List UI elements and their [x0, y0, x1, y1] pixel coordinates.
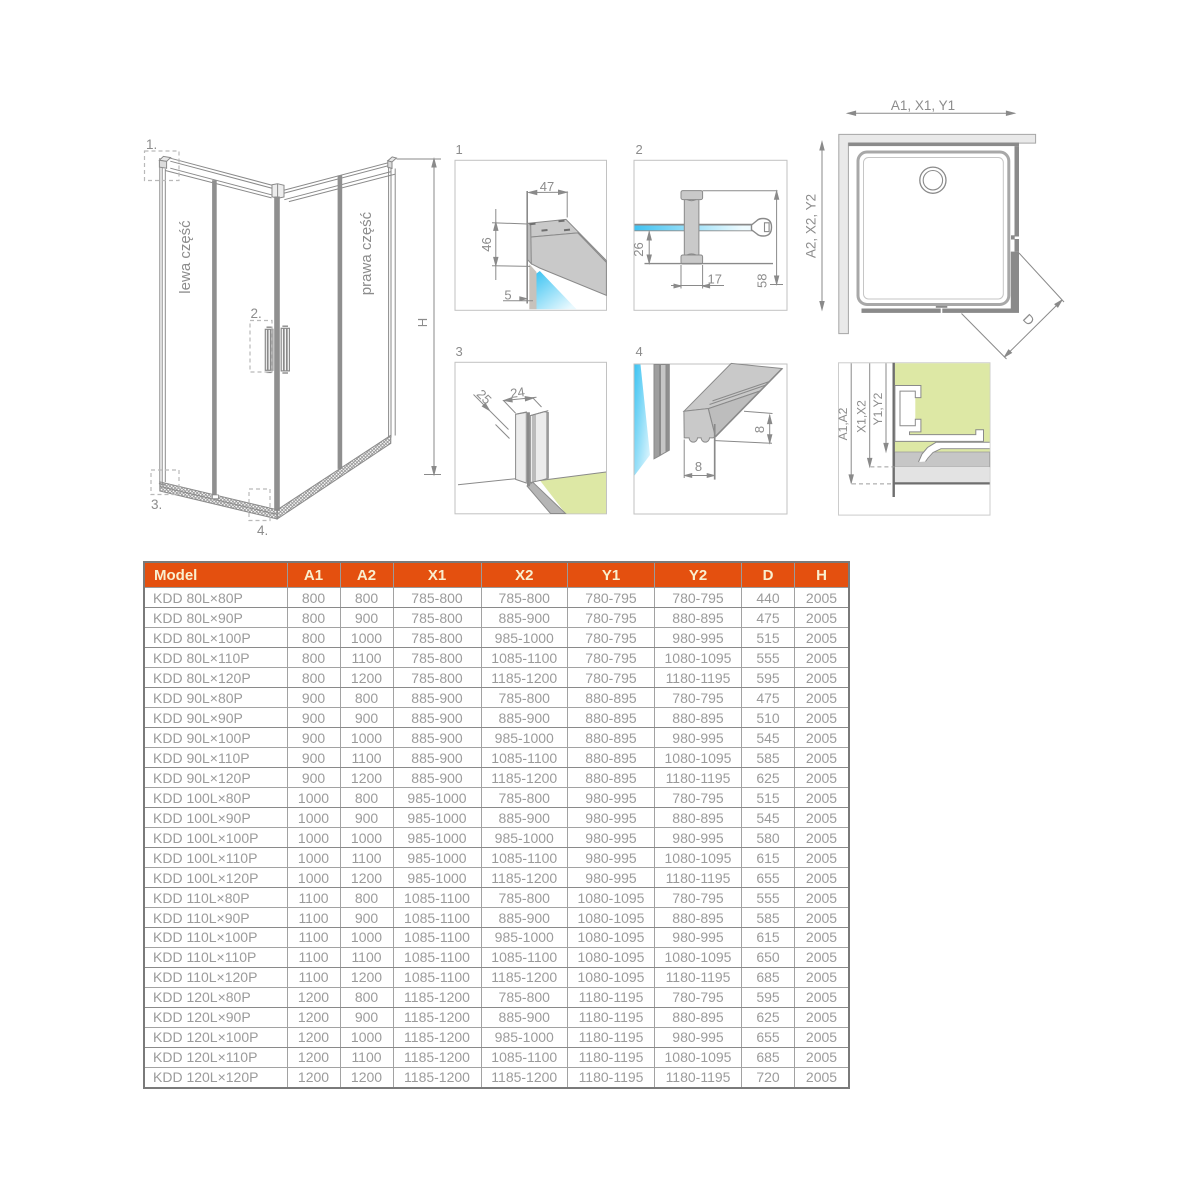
svg-text:46: 46 [479, 237, 494, 251]
svg-text:A1, X1, Y1: A1, X1, Y1 [891, 98, 955, 113]
svg-text:8: 8 [695, 459, 702, 474]
svg-text:lewa część: lewa część [177, 220, 194, 294]
svg-text:4: 4 [636, 344, 643, 359]
svg-text:1: 1 [456, 142, 463, 157]
svg-text:3: 3 [456, 344, 463, 359]
svg-text:X1,X2: X1,X2 [855, 400, 869, 433]
svg-text:prawa część: prawa część [358, 211, 375, 295]
svg-text:25: 25 [474, 386, 495, 407]
svg-text:1.: 1. [146, 137, 157, 152]
svg-text:Y1,Y2: Y1,Y2 [871, 392, 885, 425]
svg-text:A1,A2: A1,A2 [836, 407, 850, 440]
svg-text:8: 8 [752, 426, 767, 433]
svg-text:A2, X2, Y2: A2, X2, Y2 [804, 194, 819, 258]
svg-text:H: H [415, 318, 430, 327]
svg-text:17: 17 [708, 272, 722, 287]
svg-text:4.: 4. [257, 523, 268, 538]
svg-text:26: 26 [631, 242, 646, 256]
svg-text:58: 58 [755, 274, 770, 288]
svg-text:47: 47 [540, 179, 554, 194]
svg-text:5: 5 [504, 288, 511, 303]
svg-text:2: 2 [636, 142, 643, 157]
svg-text:3.: 3. [151, 497, 162, 512]
svg-text:2.: 2. [251, 306, 262, 321]
svg-text:24: 24 [509, 384, 525, 401]
